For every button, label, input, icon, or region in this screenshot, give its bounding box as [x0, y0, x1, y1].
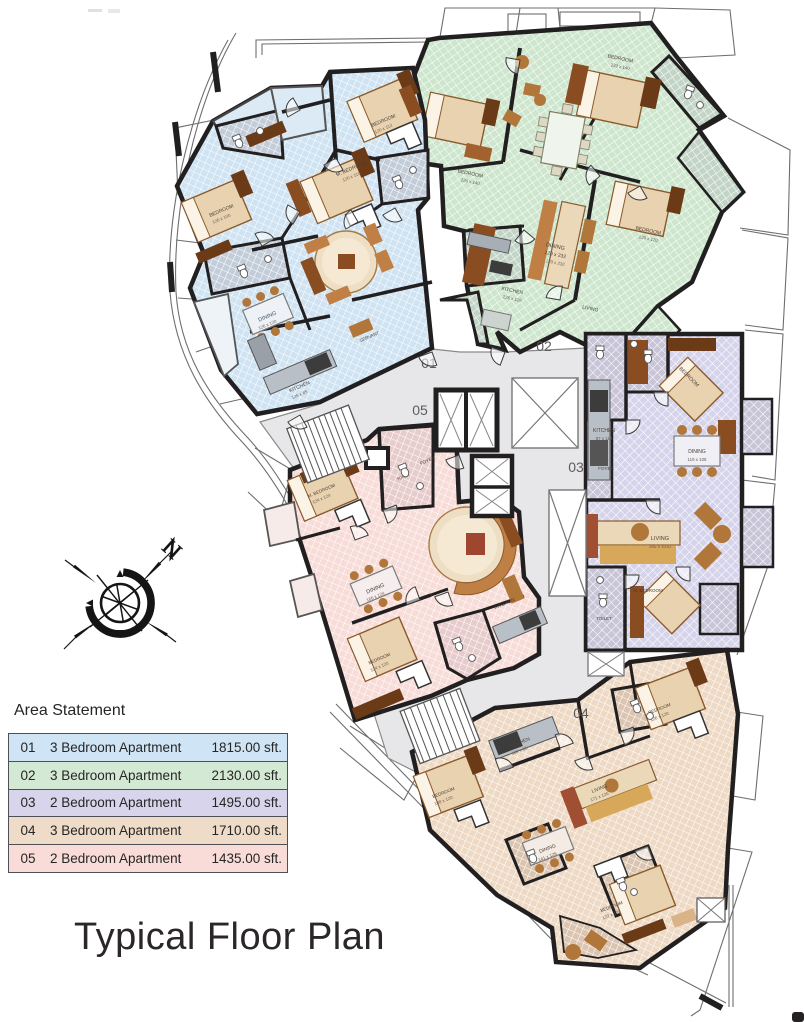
svg-text:205 x 1010: 205 x 1010	[649, 544, 671, 549]
svg-text:05: 05	[412, 402, 428, 418]
svg-text:87 x 110: 87 x 110	[596, 436, 613, 441]
svg-text:DINING: DINING	[688, 449, 706, 455]
svg-text:119 x 108: 119 x 108	[688, 457, 708, 462]
svg-text:TOILET: TOILET	[596, 616, 612, 621]
svg-text:LIVING: LIVING	[651, 536, 669, 542]
svg-text:FOYER: FOYER	[598, 466, 614, 471]
svg-text:M. BEDROOM: M. BEDROOM	[633, 588, 663, 593]
svg-text:04: 04	[573, 705, 589, 721]
svg-text:02: 02	[536, 338, 552, 354]
svg-text:03: 03	[568, 459, 584, 475]
svg-text:KITCHEN: KITCHEN	[593, 428, 615, 434]
